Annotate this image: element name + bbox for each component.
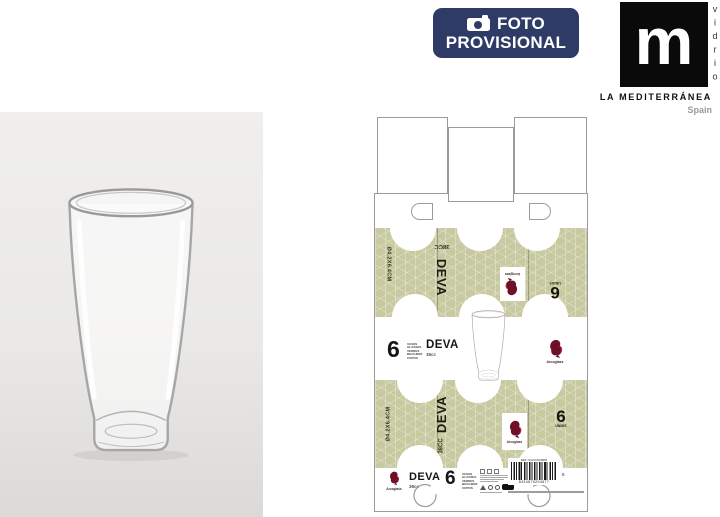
shot-glass-photo (46, 176, 216, 464)
panel1-capacity: 38CC (424, 243, 460, 249)
care-icon (494, 469, 499, 474)
panel1-dimensions: Ø4.2X6.4CM (380, 235, 396, 293)
wave-cut (522, 294, 568, 340)
bottom-units-count: 6 (445, 470, 456, 488)
material-code-badge (502, 484, 514, 490)
barcode-side-digit: 5 (562, 472, 565, 477)
thumb-cut-left (410, 481, 440, 511)
product-photo (0, 112, 263, 517)
panel2-units: 6 UNIDS (548, 409, 574, 445)
carton-flap-left (377, 117, 448, 193)
brand-country: Spain (598, 105, 712, 115)
front-unit-words: VASOSGLASSES VERRESBICCHIERI COPOS (407, 343, 422, 360)
carton-flap-middle (448, 127, 514, 202)
handle-hole-left (411, 203, 433, 220)
arcoglass-icon (387, 471, 401, 486)
barcode-block: REF: 5110C00JB04 8434679204677 (508, 458, 560, 485)
product-sheet: FOTO PROVISIONAL m vidrio LA MEDITERRÁNE… (0, 0, 720, 517)
panel2-capacity: 38CC (428, 435, 456, 457)
badge-line1: FOTO (497, 14, 545, 33)
front-arcoglass-logo: Arcoglass (540, 337, 570, 365)
bottom-unit-words: VASOSGLASSES VERRESBICCHIERI COPOS (462, 473, 477, 490)
camera-icon (467, 15, 491, 32)
barcode-bars (511, 462, 557, 480)
arcoglass-icon (507, 420, 523, 439)
arcoglass-icon (547, 339, 564, 359)
logo-letter: m (635, 11, 694, 71)
panel1-units: 6 UNIDS (542, 264, 568, 300)
panel1-product-name: DEVA (426, 253, 458, 301)
handle-hole-right (529, 203, 551, 220)
front-units-count: 6 (387, 338, 400, 360)
wave-cut (457, 205, 503, 251)
provisional-photo-badge: FOTO PROVISIONAL (433, 8, 579, 58)
green-dot-icon (495, 485, 500, 490)
brand-name: LA MEDITERRÁNEA (598, 92, 712, 102)
panel2-product-name: DEVA (426, 389, 458, 439)
badge-line2: PROVISIONAL (446, 33, 566, 52)
bottom-arcoglass-logo: Arcoglass (382, 470, 406, 492)
fine-print-line (508, 491, 584, 493)
care-icon (480, 469, 485, 474)
thumb-cut-right (524, 481, 554, 511)
barcode-number: 8434679204677 (508, 480, 560, 485)
care-icon (487, 469, 492, 474)
panel2-arcoglass-logo: Arcoglass (502, 413, 527, 450)
front-product-name: DEVA 38cc (426, 340, 459, 357)
panel1-arcoglass-logo: Arcoglass (500, 267, 525, 301)
packaging-dieline: Ø4.2X6.4CM 38CC DEVA Arcoglass 6 UNIDS Ø… (372, 117, 590, 513)
carton-flap-right (514, 117, 587, 193)
shot-glass-pack-image (466, 307, 511, 384)
vidrio-vertical-text: vidrio (710, 4, 720, 88)
arcoglass-icon (505, 277, 521, 296)
recycle-icon (480, 485, 486, 490)
tidyman-icon (488, 485, 493, 490)
panel2-dimensions: Ø4.2X6.4CM (380, 395, 396, 453)
la-mediterranea-logo: m (620, 2, 708, 87)
